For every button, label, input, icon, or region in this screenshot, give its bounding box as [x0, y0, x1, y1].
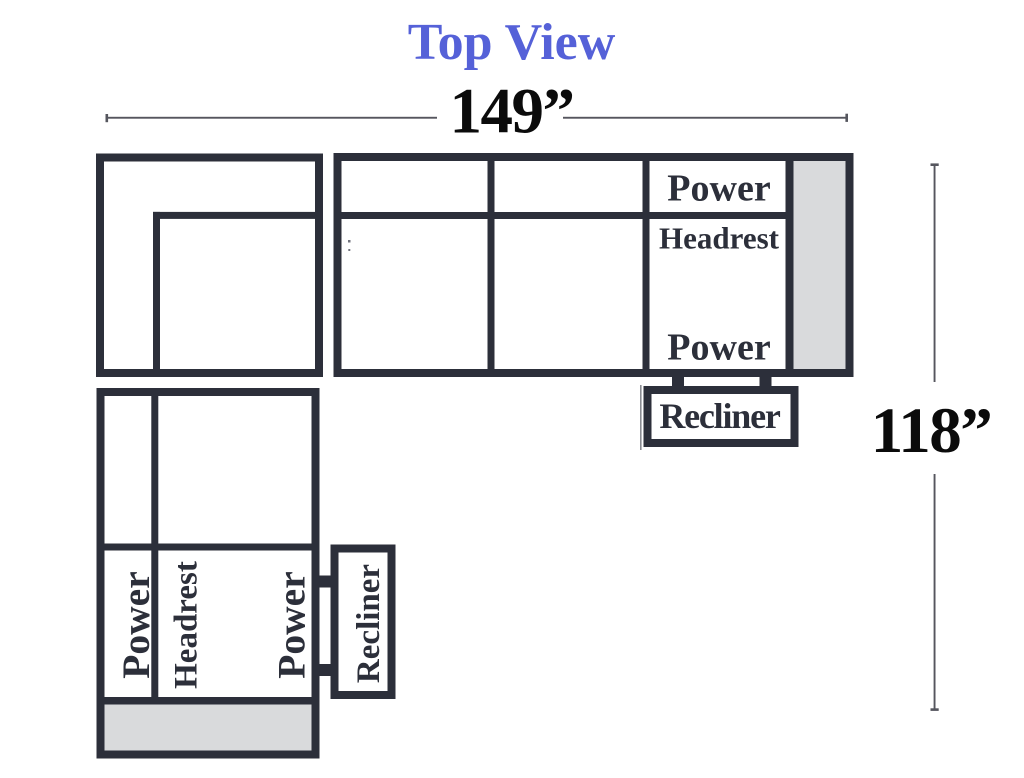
svg-text:Power: Power	[114, 571, 158, 678]
svg-text:Recliner: Recliner	[351, 564, 387, 683]
svg-text:Headrest: Headrest	[659, 221, 780, 256]
svg-text:Top View: Top View	[408, 14, 616, 71]
svg-text:118”: 118”	[871, 395, 991, 467]
svg-text:Power: Power	[667, 168, 771, 210]
svg-text:149”: 149”	[450, 76, 574, 148]
svg-text:Power: Power	[270, 571, 314, 678]
svg-text:Headrest: Headrest	[169, 561, 205, 689]
svg-text:Recliner: Recliner	[659, 396, 781, 436]
svg-text:Power: Power	[667, 327, 771, 369]
